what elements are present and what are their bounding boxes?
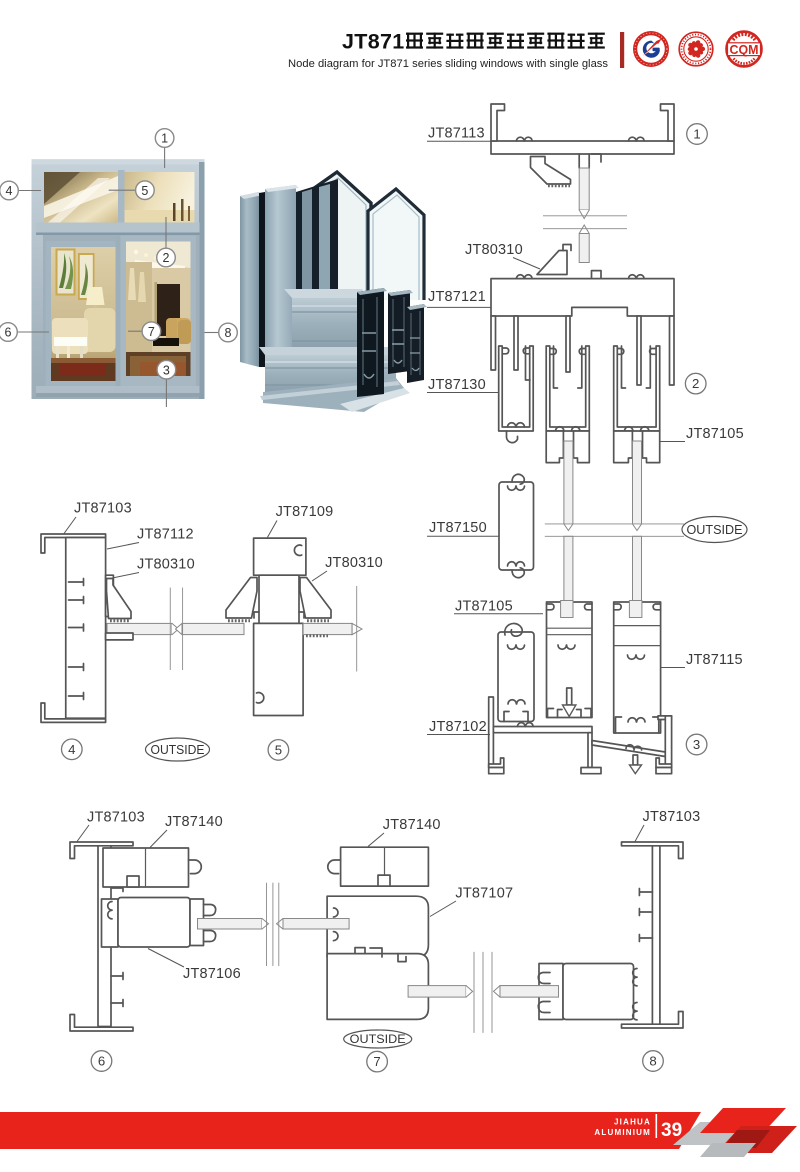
svg-text:7: 7 bbox=[148, 325, 155, 339]
svg-text:JT87105: JT87105 bbox=[686, 426, 744, 442]
svg-text:JT87112: JT87112 bbox=[137, 527, 194, 543]
svg-text:8: 8 bbox=[649, 1054, 656, 1069]
svg-text:JT87130: JT87130 bbox=[428, 377, 486, 393]
svg-text:JT87102: JT87102 bbox=[429, 719, 487, 735]
svg-text:1: 1 bbox=[161, 132, 168, 146]
svg-text:4: 4 bbox=[6, 184, 13, 198]
svg-text:8: 8 bbox=[225, 326, 232, 340]
svg-text:JT87103: JT87103 bbox=[74, 501, 132, 517]
svg-text:ALUMINIUM: ALUMINIUM bbox=[594, 1128, 651, 1137]
svg-text:5: 5 bbox=[141, 184, 148, 198]
svg-text:3: 3 bbox=[163, 363, 170, 377]
svg-text:1: 1 bbox=[693, 127, 700, 142]
svg-text:6: 6 bbox=[98, 1054, 105, 1069]
svg-text:39: 39 bbox=[661, 1120, 682, 1141]
svg-text:JT80310: JT80310 bbox=[465, 242, 523, 258]
svg-text:CQM: CQM bbox=[730, 42, 759, 57]
svg-text:JT87113: JT87113 bbox=[428, 126, 485, 142]
svg-text:JT871: JT871 bbox=[342, 29, 404, 53]
svg-text:2: 2 bbox=[692, 376, 699, 391]
svg-text:JT87150: JT87150 bbox=[429, 520, 487, 536]
svg-text:JT87109: JT87109 bbox=[276, 504, 334, 520]
svg-text:JT87106: JT87106 bbox=[183, 966, 241, 982]
svg-text:OUTSIDE: OUTSIDE bbox=[687, 523, 743, 537]
svg-text:4: 4 bbox=[68, 742, 75, 757]
svg-text:JT87115: JT87115 bbox=[686, 652, 743, 668]
svg-text:JT87140: JT87140 bbox=[383, 817, 441, 833]
svg-text:Node diagram for JT871 series: Node diagram for JT871 series sliding wi… bbox=[288, 58, 608, 70]
svg-text:JIAHUA: JIAHUA bbox=[614, 1118, 651, 1127]
svg-text:JT87107: JT87107 bbox=[455, 886, 513, 902]
svg-text:JT80310: JT80310 bbox=[325, 555, 383, 571]
svg-text:JT87121: JT87121 bbox=[428, 289, 486, 305]
svg-text:OUTSIDE: OUTSIDE bbox=[151, 743, 205, 757]
svg-text:JT87103: JT87103 bbox=[643, 809, 701, 825]
svg-text:2: 2 bbox=[163, 251, 170, 265]
svg-text:JT87105: JT87105 bbox=[455, 599, 513, 615]
svg-text:OUTSIDE: OUTSIDE bbox=[350, 1032, 406, 1046]
svg-text:JT87140: JT87140 bbox=[165, 814, 223, 830]
svg-text:JT80310: JT80310 bbox=[137, 557, 195, 573]
svg-text:5: 5 bbox=[275, 743, 282, 758]
svg-text:6: 6 bbox=[5, 326, 12, 340]
svg-text:3: 3 bbox=[693, 737, 700, 752]
svg-text:7: 7 bbox=[373, 1054, 380, 1069]
svg-text:JT87103: JT87103 bbox=[87, 810, 145, 826]
